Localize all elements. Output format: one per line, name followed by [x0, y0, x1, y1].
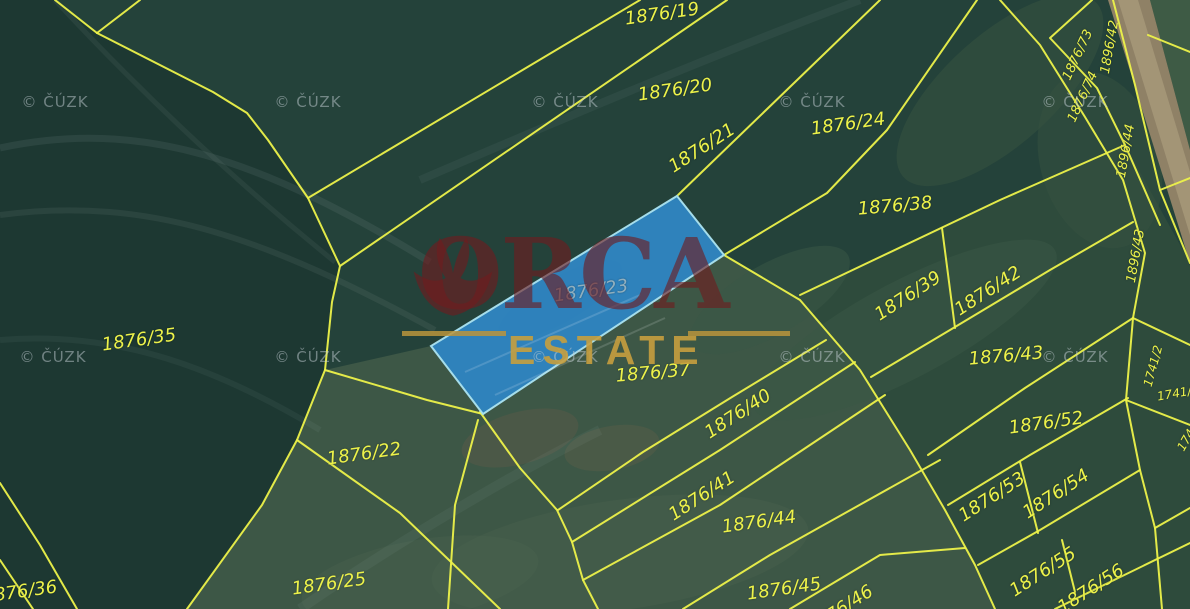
field-trail [420, 0, 860, 180]
map-graphics-layer [0, 0, 1190, 609]
estate-rule-left [402, 331, 506, 336]
parcel-boundary [97, 0, 140, 33]
cadastral-map-canvas[interactable]: 1876/191876/201876/211876/241876/381876/… [0, 0, 1190, 609]
parcel-boundary [308, 0, 640, 198]
estate-rule-right [688, 331, 790, 336]
